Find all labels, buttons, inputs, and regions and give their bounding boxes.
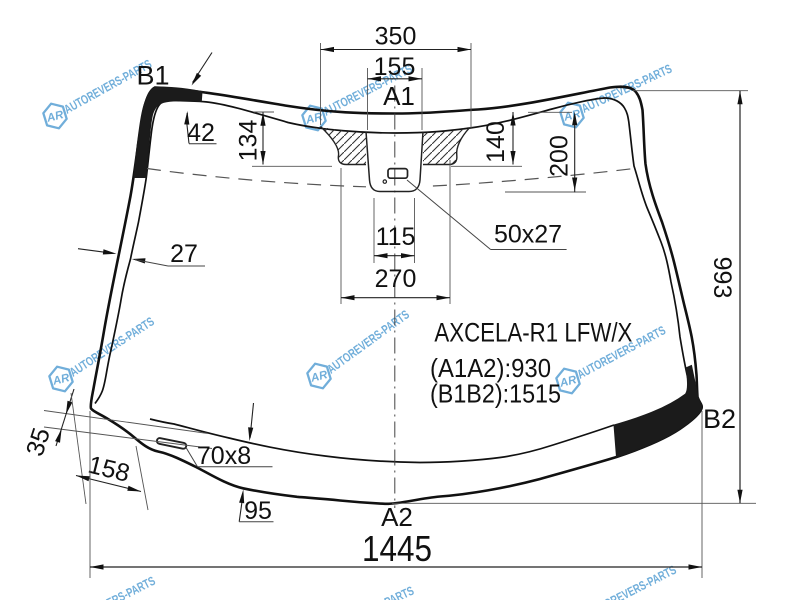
- svg-text:42: 42: [187, 119, 215, 147]
- svg-text:350: 350: [375, 23, 417, 51]
- svg-text:A1: A1: [383, 81, 415, 111]
- svg-text:993: 993: [708, 257, 736, 299]
- svg-text:AXCELA-R1 LFW/X: AXCELA-R1 LFW/X: [434, 318, 632, 348]
- svg-text:155: 155: [374, 53, 416, 81]
- svg-text:1445: 1445: [362, 528, 432, 569]
- svg-text:115: 115: [376, 223, 416, 251]
- svg-text:200: 200: [546, 135, 574, 177]
- svg-text:B2: B2: [703, 404, 736, 434]
- svg-text:70x8: 70x8: [197, 442, 251, 470]
- svg-text:95: 95: [244, 497, 272, 525]
- svg-text:27: 27: [170, 240, 198, 268]
- svg-text:140: 140: [482, 121, 510, 163]
- svg-text:B1: B1: [136, 61, 169, 91]
- svg-text:50x27: 50x27: [494, 221, 562, 249]
- svg-text:(B1B2):1515: (B1B2):1515: [430, 379, 561, 409]
- svg-text:270: 270: [375, 265, 417, 293]
- svg-text:134: 134: [235, 120, 263, 162]
